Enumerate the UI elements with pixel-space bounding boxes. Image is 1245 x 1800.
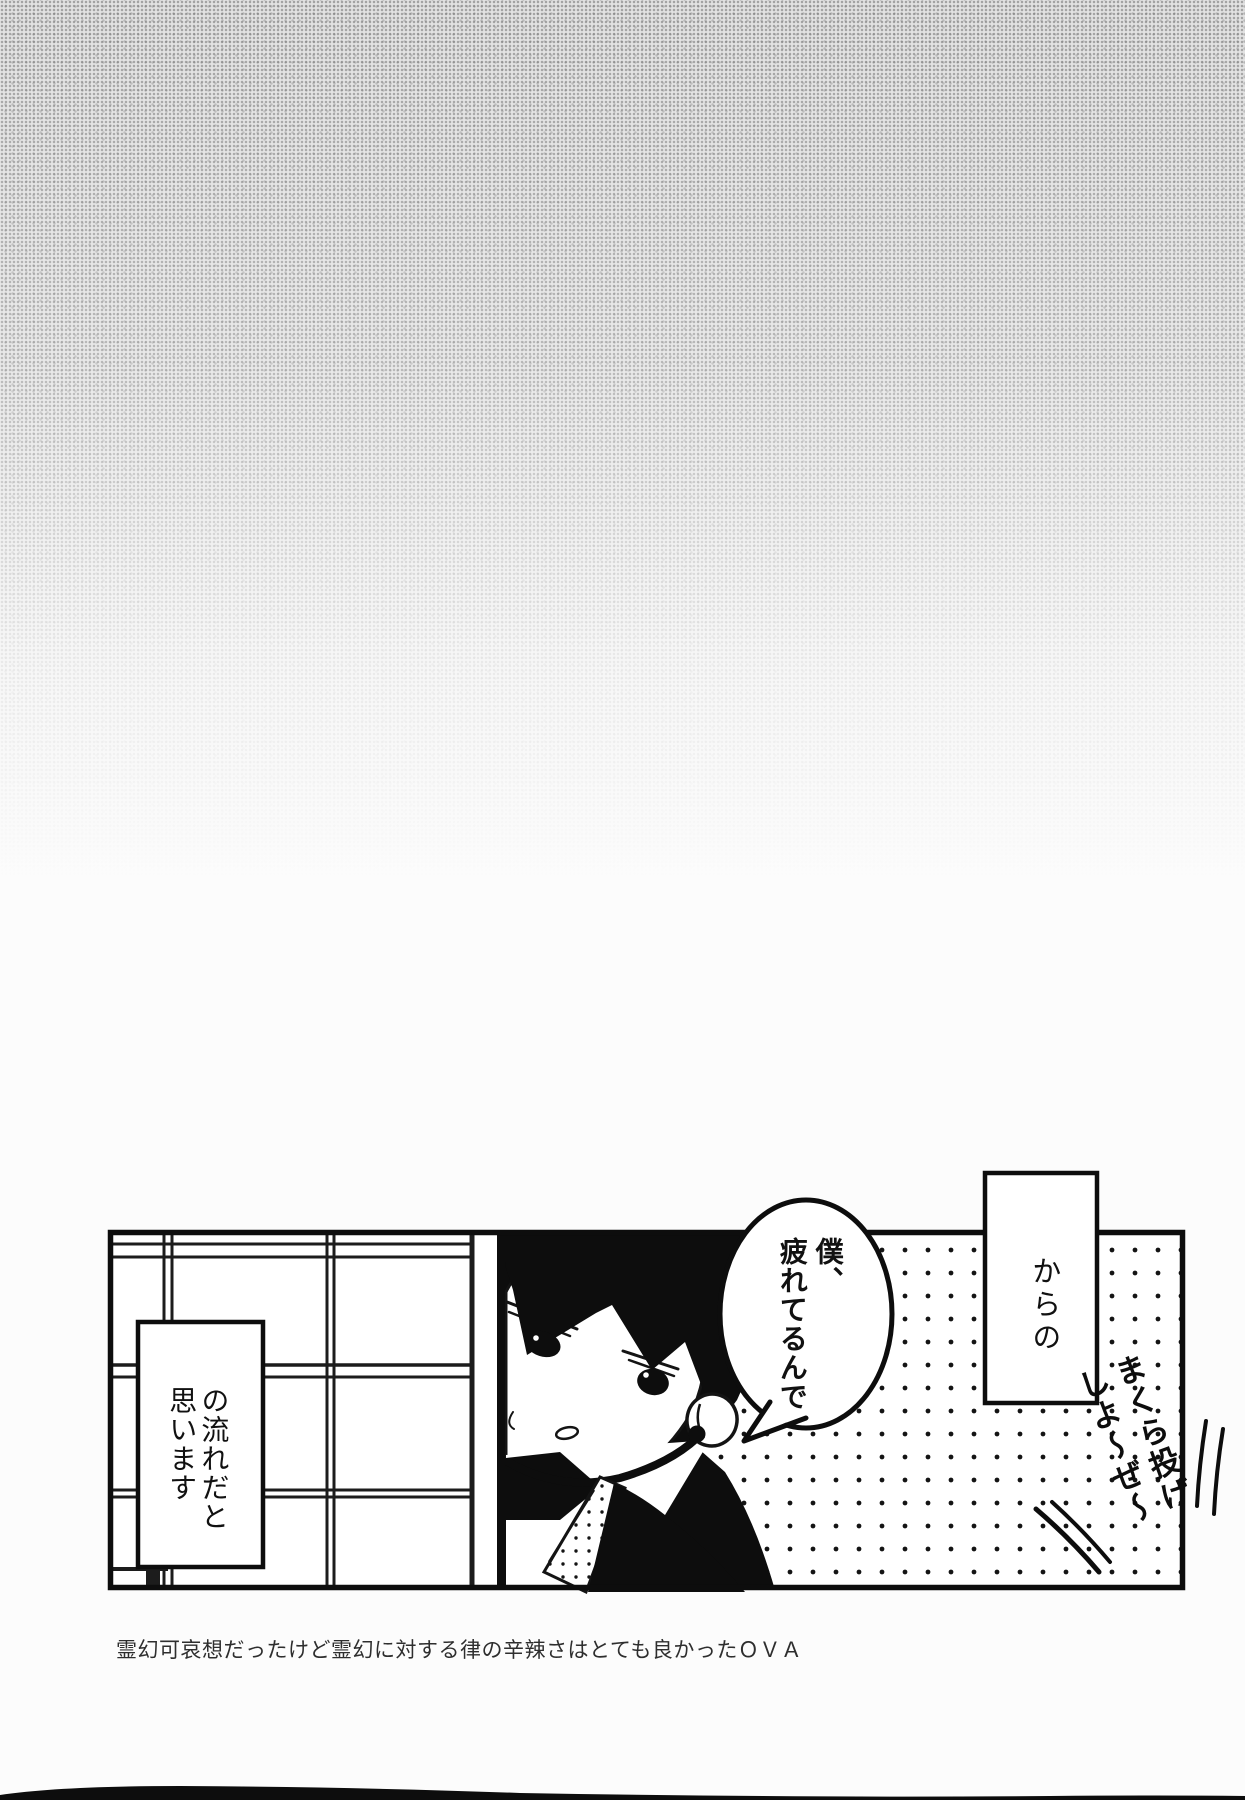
- narration-box-right-text: からの: [1026, 1256, 1061, 1406]
- speech-bubble-text: 僕、 疲れてるんで: [774, 1237, 846, 1422]
- speech-line: 僕、: [810, 1237, 846, 1422]
- scan-edge: [0, 1786, 1245, 1800]
- speech-line: 疲れてるんで: [774, 1237, 810, 1422]
- bottom-caption: 霊幻可哀想だったけど霊幻に対する律の辛辣さはとても良かったＯＶＡ: [116, 1634, 802, 1664]
- narration-line: 思います: [164, 1386, 196, 1576]
- narration-box-left-text: の流れだと 思います: [164, 1386, 228, 1576]
- scanned-manga-page: 僕、 疲れてるんで からの の流れだと 思います まくら投げ しよ～ぜ～ 霊幻可…: [0, 0, 1245, 1800]
- door-edge: [497, 1230, 505, 1590]
- narration-line: の流れだと: [196, 1386, 228, 1576]
